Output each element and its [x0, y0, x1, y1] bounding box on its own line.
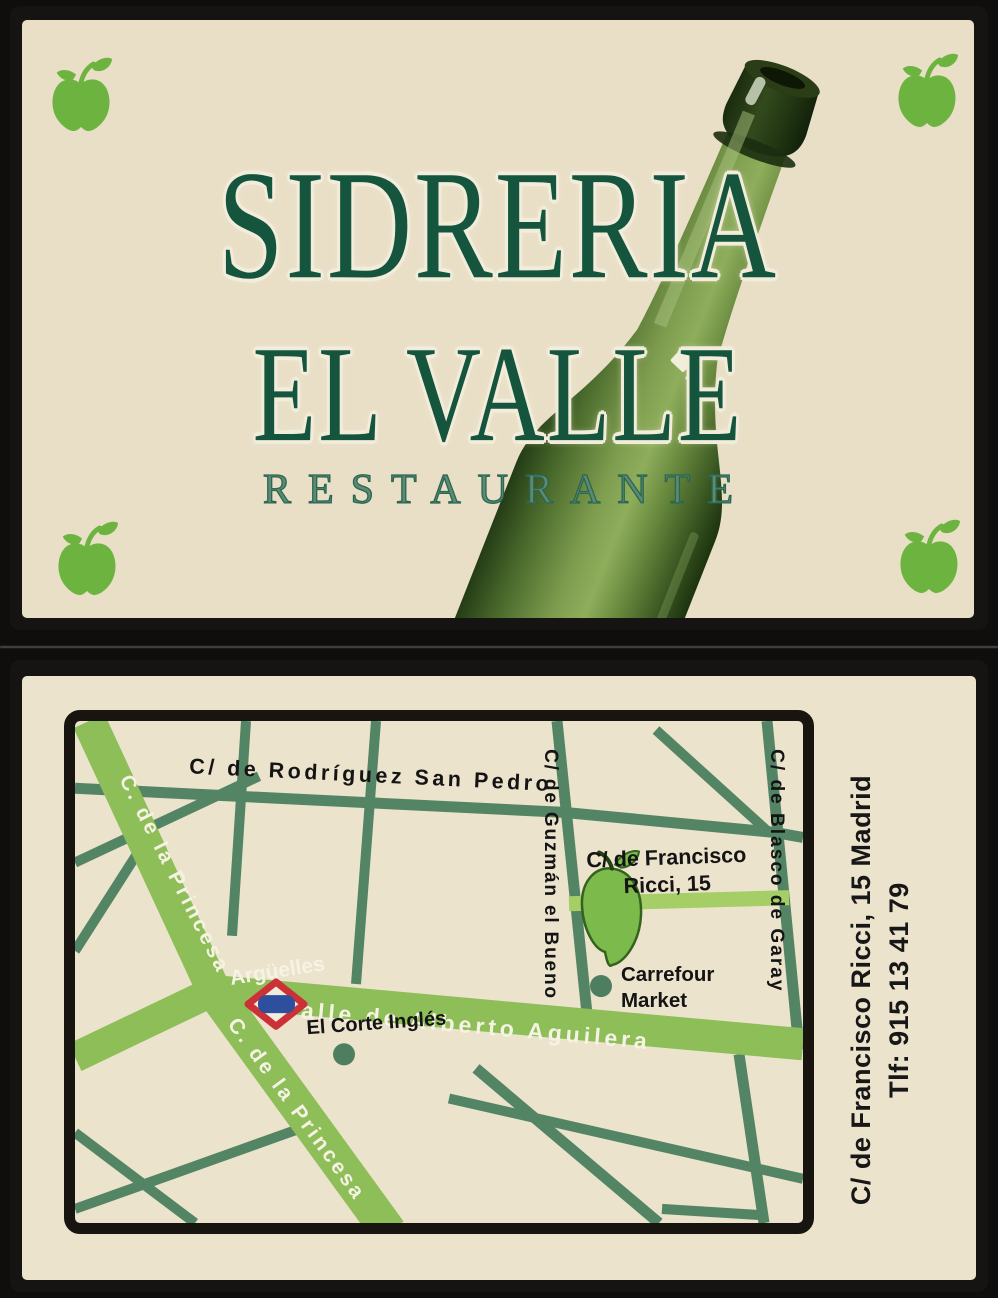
business-card-scan: SIDRERIA EL VALLE RESTAURANTE: [0, 0, 998, 1298]
apple-icon: [48, 56, 114, 134]
scan-scratch-line: [0, 646, 998, 648]
location-map: C/ de Rodríguez San Pedro C. de la Princ…: [75, 721, 803, 1223]
poi-carrefour-line2: Market: [621, 989, 687, 1012]
map-frame: C/ de Rodríguez San Pedro C. de la Princ…: [64, 710, 814, 1234]
street-label-princesa-upper: C. de la Princesa: [115, 771, 235, 977]
contact-address: C/ de Francisco Ricci, 15 Madrid: [842, 680, 880, 1280]
card-back: C/ de Rodríguez San Pedro C. de la Princ…: [10, 660, 988, 1292]
contact-phone: Tlf: 915 13 41 79: [880, 680, 918, 1280]
apple-icon: [894, 52, 960, 130]
svg-text:C/ de Francisco: C/ de Francisco: [586, 843, 747, 873]
restaurant-name-line1: SIDRERIA: [22, 136, 974, 272]
card-front-background: SIDRERIA EL VALLE RESTAURANTE: [22, 20, 974, 618]
street-label-princesa-lower: C. de la Princesa: [223, 1014, 370, 1205]
svg-text:Ricci, 15: Ricci, 15: [623, 871, 711, 898]
title-text-elvalle: EL VALLE: [22, 316, 974, 473]
restaurant-subtitle: RESTAURANTE: [22, 466, 974, 514]
street-label-guzman: C/ de Guzmán el Bueno: [540, 749, 561, 1000]
title-text-sidreria: SIDRERIA: [22, 136, 974, 316]
poi-carrefour-line1: Carrefour: [621, 963, 714, 986]
street-label-blasco: C/ de Blasco de Garay: [766, 749, 787, 992]
apple-icon: [896, 518, 962, 596]
corte-ingles-dot: [333, 1043, 355, 1065]
carrefour-dot: [590, 975, 612, 997]
apple-icon: [54, 520, 120, 598]
card-back-background: C/ de Rodríguez San Pedro C. de la Princ…: [22, 676, 976, 1280]
card-front: SIDRERIA EL VALLE RESTAURANTE: [10, 6, 988, 630]
restaurant-name-line2: EL VALLE: [22, 316, 974, 435]
contact-info-vertical: C/ de Francisco Ricci, 15 Madrid Tlf: 91…: [842, 680, 918, 1280]
